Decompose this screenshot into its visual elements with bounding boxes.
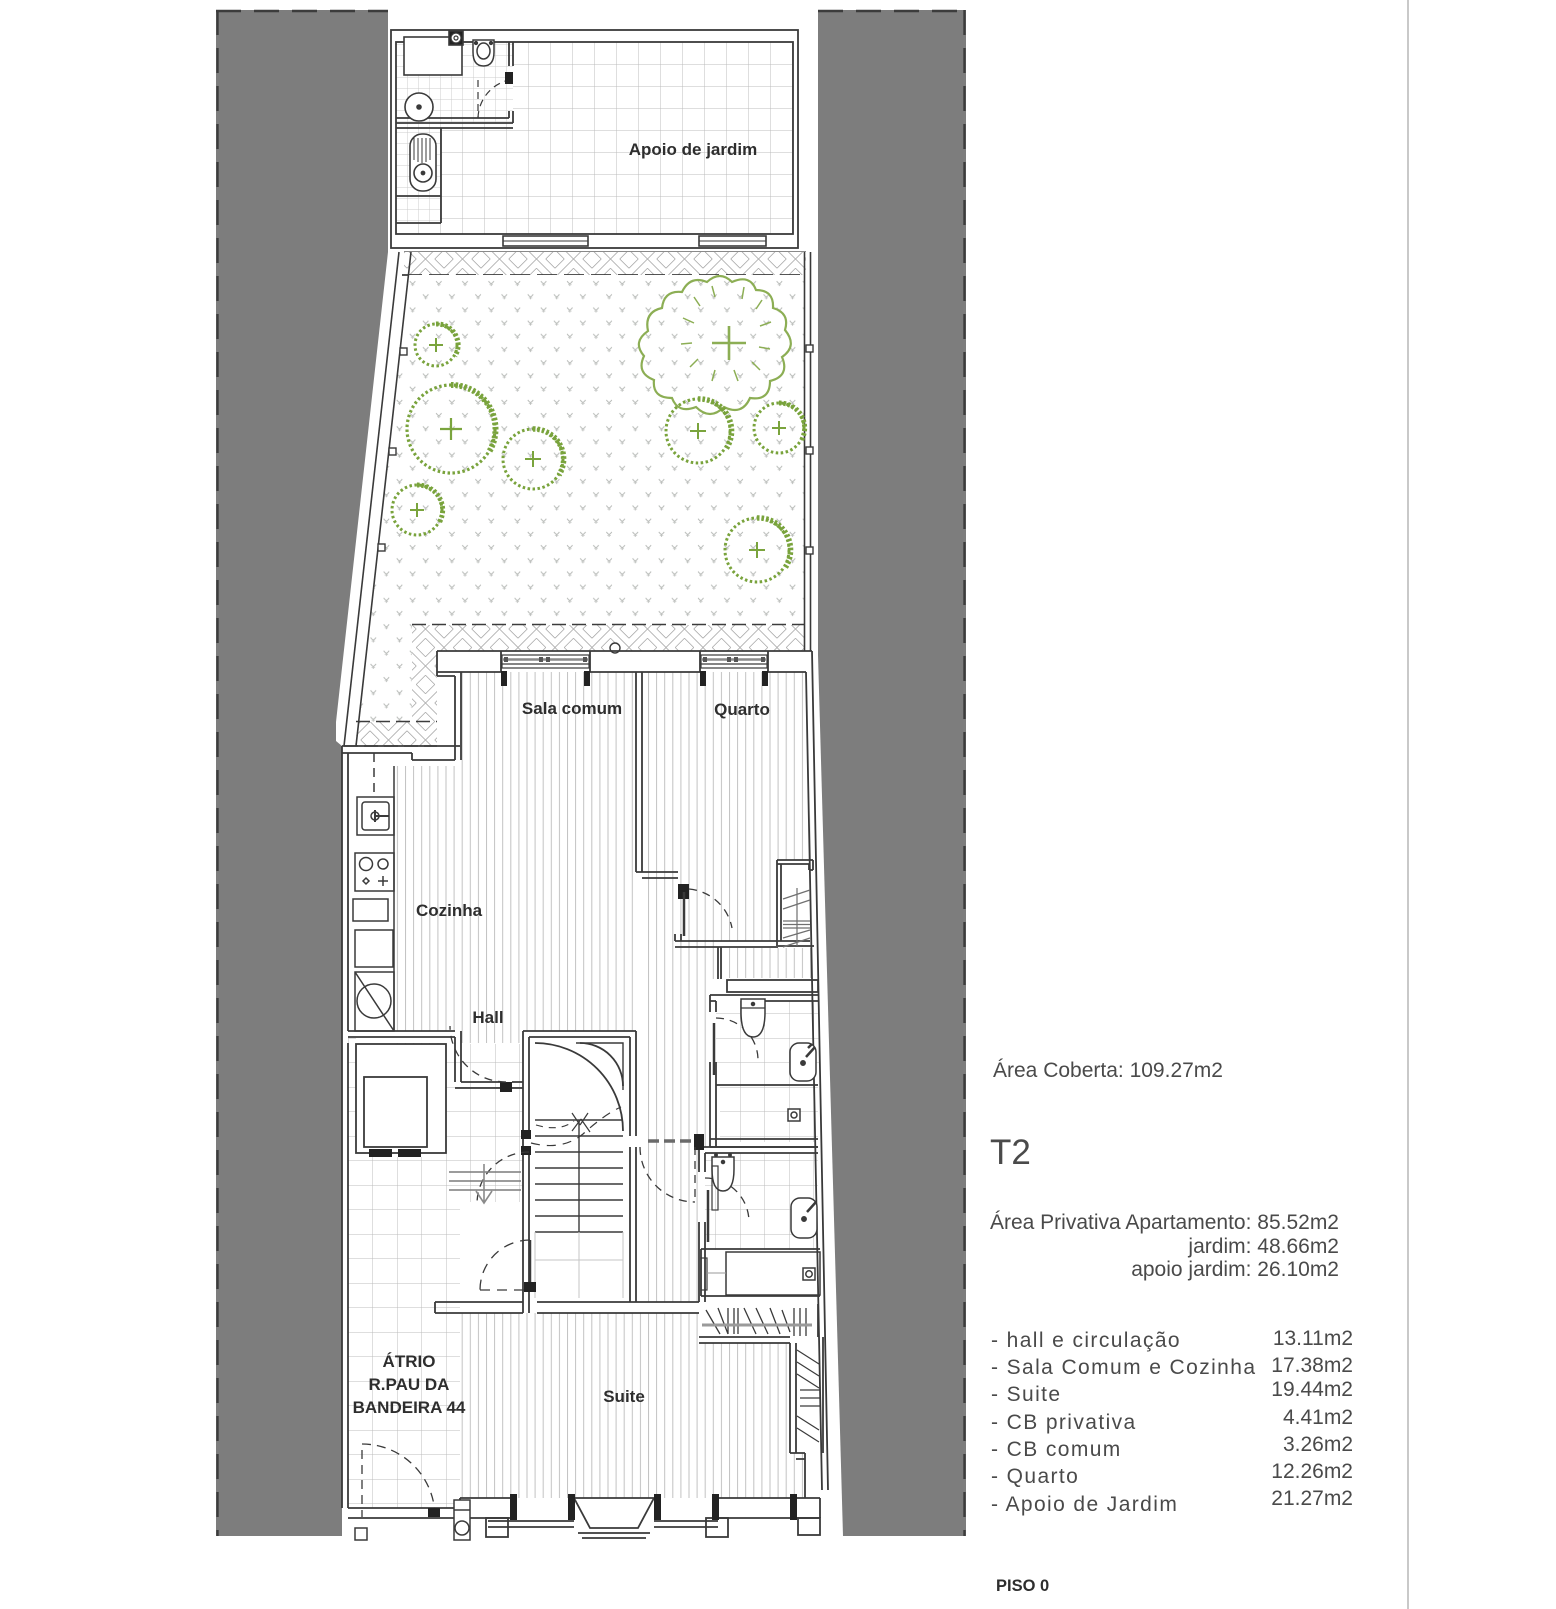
svg-text:17.38m2: 17.38m2 bbox=[1271, 1354, 1353, 1377]
svg-text:4.41m2: 4.41m2 bbox=[1283, 1406, 1353, 1429]
svg-text:- hall e circulação: - hall e circulação bbox=[991, 1329, 1181, 1352]
svg-text:Hall: Hall bbox=[472, 1008, 503, 1027]
svg-text:Sala comum: Sala comum bbox=[522, 699, 622, 718]
svg-text:- Quarto: - Quarto bbox=[991, 1465, 1079, 1488]
svg-text:Suite: Suite bbox=[603, 1387, 645, 1406]
svg-text:- Apoio de Jardim: - Apoio de Jardim bbox=[991, 1493, 1178, 1516]
svg-text:- CB comum: - CB comum bbox=[991, 1438, 1122, 1461]
svg-text:BANDEIRA 44: BANDEIRA 44 bbox=[353, 1398, 466, 1417]
svg-text:12.26m2: 12.26m2 bbox=[1271, 1460, 1353, 1483]
svg-text:19.44m2: 19.44m2 bbox=[1271, 1378, 1353, 1401]
svg-text:Apoio de jardim: Apoio de jardim bbox=[629, 140, 757, 159]
svg-text:jardim: 48.66m2: jardim: 48.66m2 bbox=[1187, 1235, 1339, 1258]
svg-text:R.PAU DA: R.PAU DA bbox=[369, 1375, 450, 1394]
svg-text:Cozinha: Cozinha bbox=[416, 901, 483, 920]
svg-text:3.26m2: 3.26m2 bbox=[1283, 1433, 1353, 1456]
svg-text:21.27m2: 21.27m2 bbox=[1271, 1487, 1353, 1510]
svg-text:- Suite: - Suite bbox=[991, 1383, 1062, 1406]
svg-text:apoio jardim: 26.10m2: apoio jardim: 26.10m2 bbox=[1131, 1258, 1339, 1281]
svg-text:- Sala Comum e Cozinha: - Sala Comum e Cozinha bbox=[991, 1356, 1256, 1379]
svg-text:Área Coberta: 109.27m2: Área Coberta: 109.27m2 bbox=[993, 1059, 1223, 1082]
svg-text:Quarto: Quarto bbox=[714, 700, 770, 719]
svg-text:PISO 0: PISO 0 bbox=[996, 1577, 1049, 1595]
svg-text:13.11m2: 13.11m2 bbox=[1273, 1327, 1353, 1350]
svg-text:Área Privativa Apartamento: 85: Área Privativa Apartamento: 85.52m2 bbox=[990, 1211, 1339, 1234]
svg-text:T2: T2 bbox=[990, 1133, 1031, 1172]
svg-text:ÁTRIO: ÁTRIO bbox=[383, 1352, 436, 1371]
svg-text:- CB privativa: - CB privativa bbox=[991, 1411, 1137, 1434]
